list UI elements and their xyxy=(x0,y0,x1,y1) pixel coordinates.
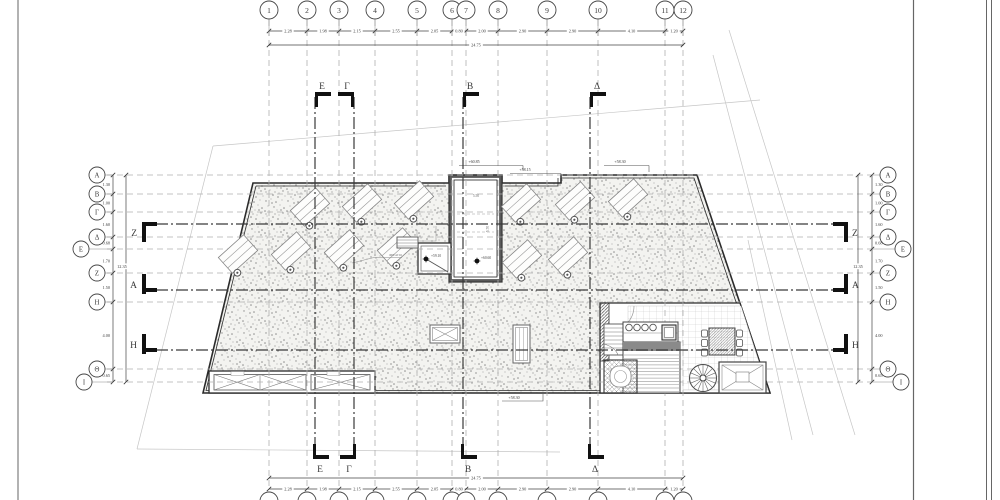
overall-dim-label: 24.75 xyxy=(471,476,481,481)
stool xyxy=(634,324,641,331)
dim-label: 1.50 xyxy=(102,285,110,290)
grid-bubble-label: Γ xyxy=(886,209,890,216)
grid-bubble-label: 7 xyxy=(464,6,468,15)
dim-label: 1.20 xyxy=(670,29,678,34)
section-letter: Β xyxy=(467,82,473,92)
grid-bubble-label: Ε xyxy=(901,246,905,253)
stool xyxy=(626,324,633,331)
dim-label: 1.70 xyxy=(102,259,110,264)
section-letter: Α xyxy=(130,281,137,291)
dim-label: 4.00 xyxy=(102,333,110,338)
grid-bubble-label: Δ xyxy=(886,234,891,241)
grid-bubble xyxy=(260,492,278,500)
dim-label: 0.65 xyxy=(875,373,883,378)
dim-label: 2.15 xyxy=(353,29,361,34)
section-letter: Γ xyxy=(346,465,352,475)
stair-bulkhead xyxy=(449,175,502,282)
section-letter: Β xyxy=(465,465,471,475)
grid-bubble-label: 1 xyxy=(267,6,271,15)
dim-label: 2.90 xyxy=(519,487,527,492)
grid-bubble xyxy=(674,492,692,500)
elevation-label: +58.30 xyxy=(508,395,519,400)
section-letter: Δ xyxy=(594,82,600,92)
leader-line xyxy=(604,166,649,173)
dim-label: 0.80 xyxy=(455,487,463,492)
dim-label: 1.20 xyxy=(670,487,678,492)
dim-label: 1.00 xyxy=(875,201,883,206)
level-label: +60.60 xyxy=(481,256,491,260)
grid-bubble xyxy=(408,492,426,500)
bulkhead-dim: 5.50 xyxy=(473,194,479,198)
dim-label: 2.15 xyxy=(353,487,361,492)
section-letter: Γ xyxy=(344,82,350,92)
grid-bubble-label: 2 xyxy=(305,6,309,15)
dim-label: 2.00 xyxy=(478,487,486,492)
grid-bubble xyxy=(589,492,607,500)
dim-label: 1.30 xyxy=(875,182,883,187)
grid-bubble-label: Ζ xyxy=(95,270,99,277)
grid-bubble-label: Γ xyxy=(95,209,99,216)
leader-line xyxy=(510,174,561,179)
grid-bubble-label: 12 xyxy=(679,6,687,15)
dim-label: 1.50 xyxy=(875,285,883,290)
grid-bubble-label: Η xyxy=(95,299,100,306)
grid-bubble xyxy=(489,492,507,500)
dim-label: 1.98 xyxy=(319,487,327,492)
dim-label: 1.30 xyxy=(102,182,110,187)
dim-label: 0.68 xyxy=(875,241,883,246)
roof-plan-drawing: +59.10+60.605.505.70ΦΡΕΑΤΙΟ+60.85+58.15+… xyxy=(0,0,1000,500)
grid-bubble xyxy=(298,492,316,500)
leader-line xyxy=(459,166,523,171)
drain-box-outer xyxy=(418,243,451,274)
dim-label: 2.28 xyxy=(284,487,292,492)
grid-bubble-label: 5 xyxy=(415,6,419,15)
dim-label: 4.10 xyxy=(628,29,636,34)
grid-bubble-label: Ε xyxy=(79,246,83,253)
dim-label: 2.05 xyxy=(431,29,439,34)
grid-bubble xyxy=(457,492,475,500)
dim-label: 1.70 xyxy=(875,259,883,264)
dim-label: 2.28 xyxy=(284,29,292,34)
dim-label: 4.00 xyxy=(875,333,883,338)
grid-bubble-label: Θ xyxy=(886,366,891,373)
chair xyxy=(702,330,708,337)
grid-bubble-label: Β xyxy=(886,191,891,198)
chair xyxy=(737,330,743,337)
dim-label: 2.90 xyxy=(519,29,527,34)
grid-bubble xyxy=(538,492,556,500)
stool xyxy=(650,324,657,331)
spiral-stair xyxy=(690,365,717,392)
boundary-line xyxy=(213,100,760,146)
strip-tag xyxy=(231,372,244,376)
drawing-sheet: +59.10+60.605.505.70ΦΡΕΑΤΙΟ+60.85+58.15+… xyxy=(0,0,1000,500)
section-letter: Ζ xyxy=(852,229,858,239)
grid-bubble-label: Β xyxy=(95,191,100,198)
bulkhead-dim: 5.70 xyxy=(486,226,490,232)
boundary-line xyxy=(748,240,792,440)
grid-bubble-label: Α xyxy=(95,172,100,179)
table xyxy=(709,328,735,355)
boundary-line xyxy=(137,146,213,449)
grid-bubble-label: 6 xyxy=(450,6,454,15)
grid-bubble xyxy=(330,492,348,500)
strip-tag xyxy=(327,372,340,376)
dim-label: 1.00 xyxy=(102,201,110,206)
grid-bubble-label: 9 xyxy=(545,6,549,15)
dim-label: 2.00 xyxy=(478,29,486,34)
section-letter: Η xyxy=(130,341,137,351)
elevation-label: +60.85 xyxy=(468,159,479,164)
grid-bubble-label: Η xyxy=(886,299,891,306)
grid-bubble-label: 10 xyxy=(594,6,602,15)
grid-bubble-label: 4 xyxy=(373,6,377,15)
section-letter: Ε xyxy=(317,465,323,475)
overall-dim-label: 12.35 xyxy=(853,264,863,269)
grid-bubble xyxy=(656,492,674,500)
dim-label: 0.80 xyxy=(455,29,463,34)
vent-grille xyxy=(397,237,418,248)
dim-label: 4.10 xyxy=(628,487,636,492)
grid-bubble-label: Θ xyxy=(95,366,100,373)
dim-label: 0.68 xyxy=(102,241,110,246)
shaft-label: ΦΡΕΑΤΙΟ xyxy=(389,253,403,257)
chair xyxy=(737,340,743,347)
section-letter: Ε xyxy=(319,82,325,92)
overall-dim-label: 24.75 xyxy=(471,43,481,48)
dim-label: 2.05 xyxy=(431,487,439,492)
elevation-label: +58.15 xyxy=(519,167,530,172)
stool xyxy=(642,324,649,331)
dim-label: 2.55 xyxy=(392,487,400,492)
boundary-line xyxy=(137,449,560,452)
dim-label: 1.60 xyxy=(875,222,883,227)
dim-label: 2.55 xyxy=(392,29,400,34)
chair xyxy=(702,340,708,347)
dim-label: 2.90 xyxy=(569,29,577,34)
dim-label: 0.65 xyxy=(102,373,110,378)
overall-dim-label: 12.35 xyxy=(117,264,127,269)
dim-label: 1.98 xyxy=(319,29,327,34)
elevation-label: +58.30 xyxy=(614,159,625,164)
grid-bubble-label: 3 xyxy=(337,6,341,15)
grid-bubble-label: Α xyxy=(886,172,891,179)
dim-label: 1.60 xyxy=(102,222,110,227)
section-letter: Δ xyxy=(592,465,598,475)
grid-bubble xyxy=(366,492,384,500)
dim-label: 2.90 xyxy=(569,487,577,492)
grid-bubble-label: Δ xyxy=(95,234,100,241)
grid-bubble-label: Ζ xyxy=(886,270,890,277)
level-label: +59.10 xyxy=(431,254,441,258)
drain-box xyxy=(418,243,451,274)
grid-bubble-label: 11 xyxy=(661,6,668,15)
grid-bubble-label: 8 xyxy=(496,6,500,15)
section-letter: Ζ xyxy=(131,229,137,239)
